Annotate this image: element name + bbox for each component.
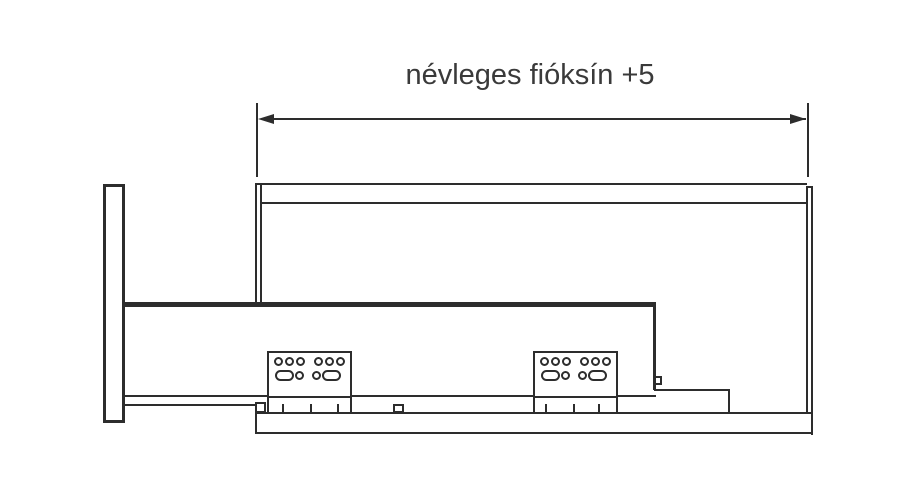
round-hole-icon: [591, 357, 600, 366]
cabinet-back-line-inner: [806, 187, 808, 433]
rail-top-flange: [123, 302, 656, 307]
round-hole-icon: [314, 357, 323, 366]
cabinet-runner-profile: [255, 412, 813, 434]
runner-tick: [310, 404, 312, 413]
dimension-extension-line-right: [807, 103, 809, 177]
round-hole-icon: [578, 371, 587, 380]
runner-tick: [545, 404, 547, 413]
dimension-label: névleges fióksín +5: [349, 57, 711, 93]
round-hole-icon: [325, 357, 334, 366]
cabinet-front-edge-inner: [260, 185, 262, 305]
dimension-arrowhead-right: [790, 114, 806, 124]
drawing-canvas: névleges fióksín +5: [0, 0, 900, 500]
cabinet-back-line-outer: [811, 187, 813, 435]
plate-rear-left-extension: [533, 398, 535, 413]
runner-tick: [337, 404, 339, 413]
slot-hole-icon: [322, 370, 341, 381]
round-hole-icon: [551, 357, 560, 366]
runner-tick: [573, 404, 575, 413]
round-hole-icon: [580, 357, 589, 366]
round-hole-icon: [540, 357, 549, 366]
slot-hole-icon: [541, 370, 560, 381]
mounting-plate-front: [267, 351, 352, 398]
rail-rear-step-horizontal: [654, 389, 730, 391]
slot-hole-icon: [275, 370, 294, 381]
round-hole-icon: [296, 357, 305, 366]
round-hole-icon: [274, 357, 283, 366]
drawer-front-panel: [103, 184, 125, 423]
round-hole-icon: [295, 371, 304, 380]
mounting-plate-rear: [533, 351, 618, 398]
runner-tick: [598, 404, 600, 413]
cabinet-top-line-outer: [255, 183, 807, 185]
cabinet-front-edge-outer: [255, 183, 257, 305]
dimension-arrowhead-left: [258, 114, 274, 124]
round-hole-icon: [561, 371, 570, 380]
runner-tick: [282, 404, 284, 413]
round-hole-icon: [602, 357, 611, 366]
plate-rear-right-extension: [616, 398, 618, 413]
round-hole-icon: [336, 357, 345, 366]
round-hole-icon: [312, 371, 321, 380]
rail-front-lower-line: [125, 404, 257, 406]
plate-front-left-extension: [267, 398, 269, 413]
cabinet-top-line-inner: [261, 202, 806, 204]
plate-front-right-extension: [350, 398, 352, 413]
dimension-line: [261, 118, 806, 120]
round-hole-icon: [285, 357, 294, 366]
round-hole-icon: [562, 357, 571, 366]
slot-hole-icon: [588, 370, 607, 381]
rail-rear-step-vertical: [728, 389, 730, 413]
rail-rear-tab: [654, 376, 662, 385]
